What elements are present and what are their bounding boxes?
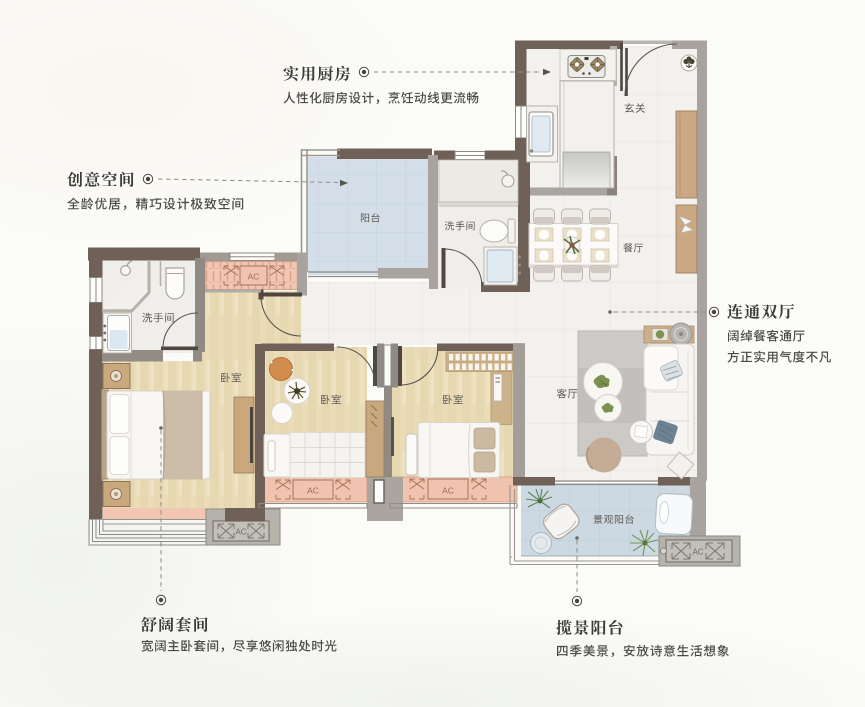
- svg-text:AC: AC: [692, 548, 703, 557]
- svg-text:AC: AC: [248, 272, 260, 282]
- svg-text:AC: AC: [235, 528, 246, 537]
- svg-text:AC: AC: [442, 486, 454, 496]
- svg-text:AC: AC: [307, 486, 319, 496]
